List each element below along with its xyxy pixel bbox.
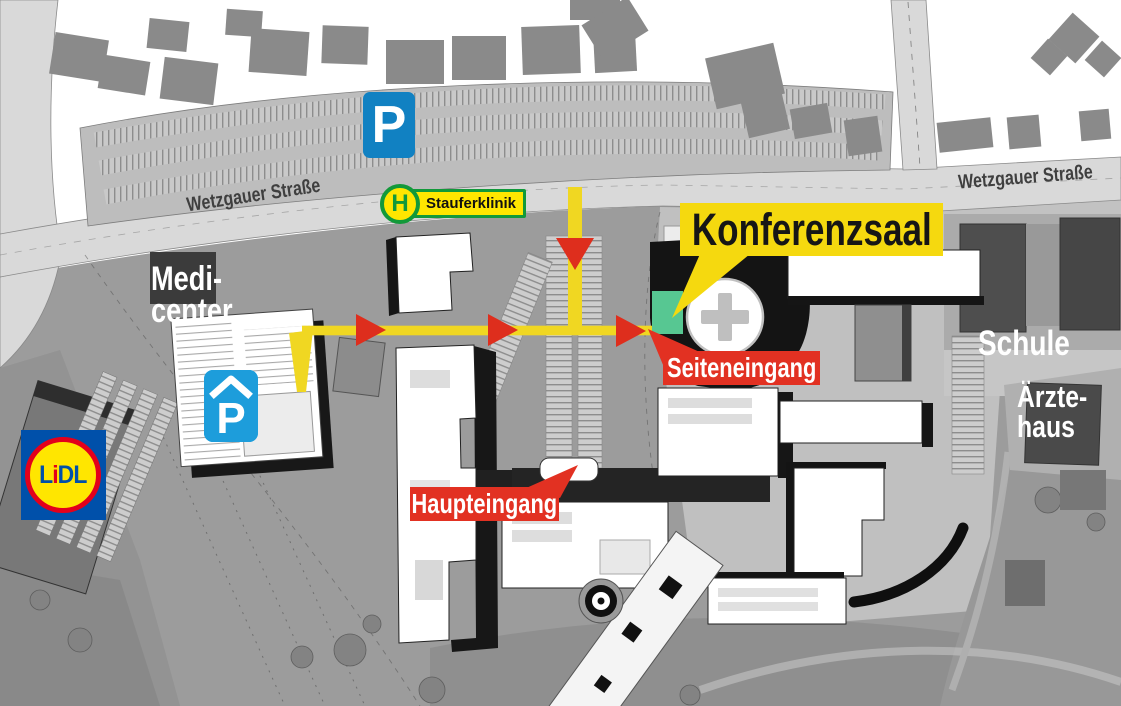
bus-stop-icon: Stauferklinik H [380, 184, 492, 224]
bus-stop-h-icon: H [380, 184, 420, 224]
schule-label: Schule [978, 328, 1093, 361]
svg-text:P: P [216, 394, 245, 442]
basemap-graphic [0, 0, 1121, 706]
lidl-circle: LiDL [25, 437, 101, 513]
lidl-wordmark: LiDL [39, 461, 86, 490]
lidl-logo: LiDL [21, 430, 106, 520]
bus-stop-name-plate: Stauferklinik [409, 189, 526, 218]
medicenter-label: Medi- center [151, 264, 253, 327]
site-map: Wetzgauer Straße Wetzgauer Straße Medi- … [0, 0, 1121, 706]
route-horizontal [302, 326, 652, 336]
covered-parking-sign-icon: P [204, 370, 258, 442]
konferenzsaal-callout: Konferenzsaal [680, 203, 943, 256]
seiteneingang-callout: Seiteneingang [663, 351, 820, 385]
parking-sign-icon: P [363, 92, 415, 158]
haupteingang-callout: Haupteingang [410, 487, 559, 521]
small-building [333, 337, 385, 396]
aerztehaus-label: Ärzte- haus [1017, 382, 1105, 442]
